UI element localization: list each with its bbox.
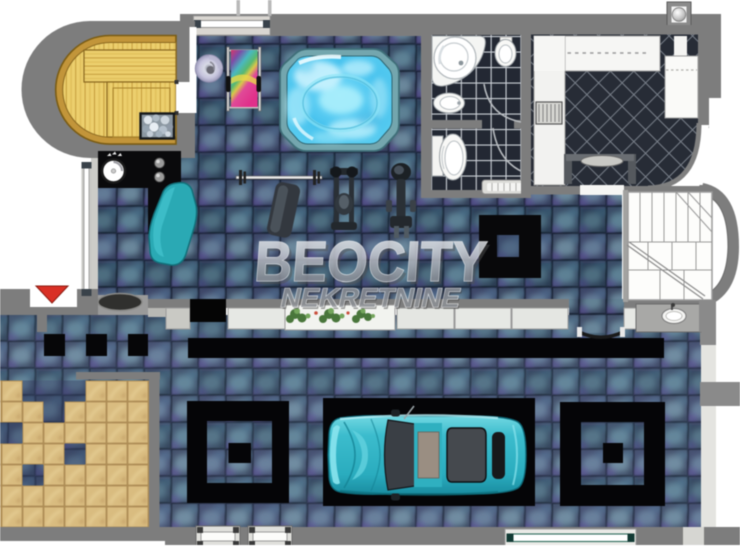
svg-text:NEKRETNINE: NEKRETNINE	[278, 282, 464, 313]
